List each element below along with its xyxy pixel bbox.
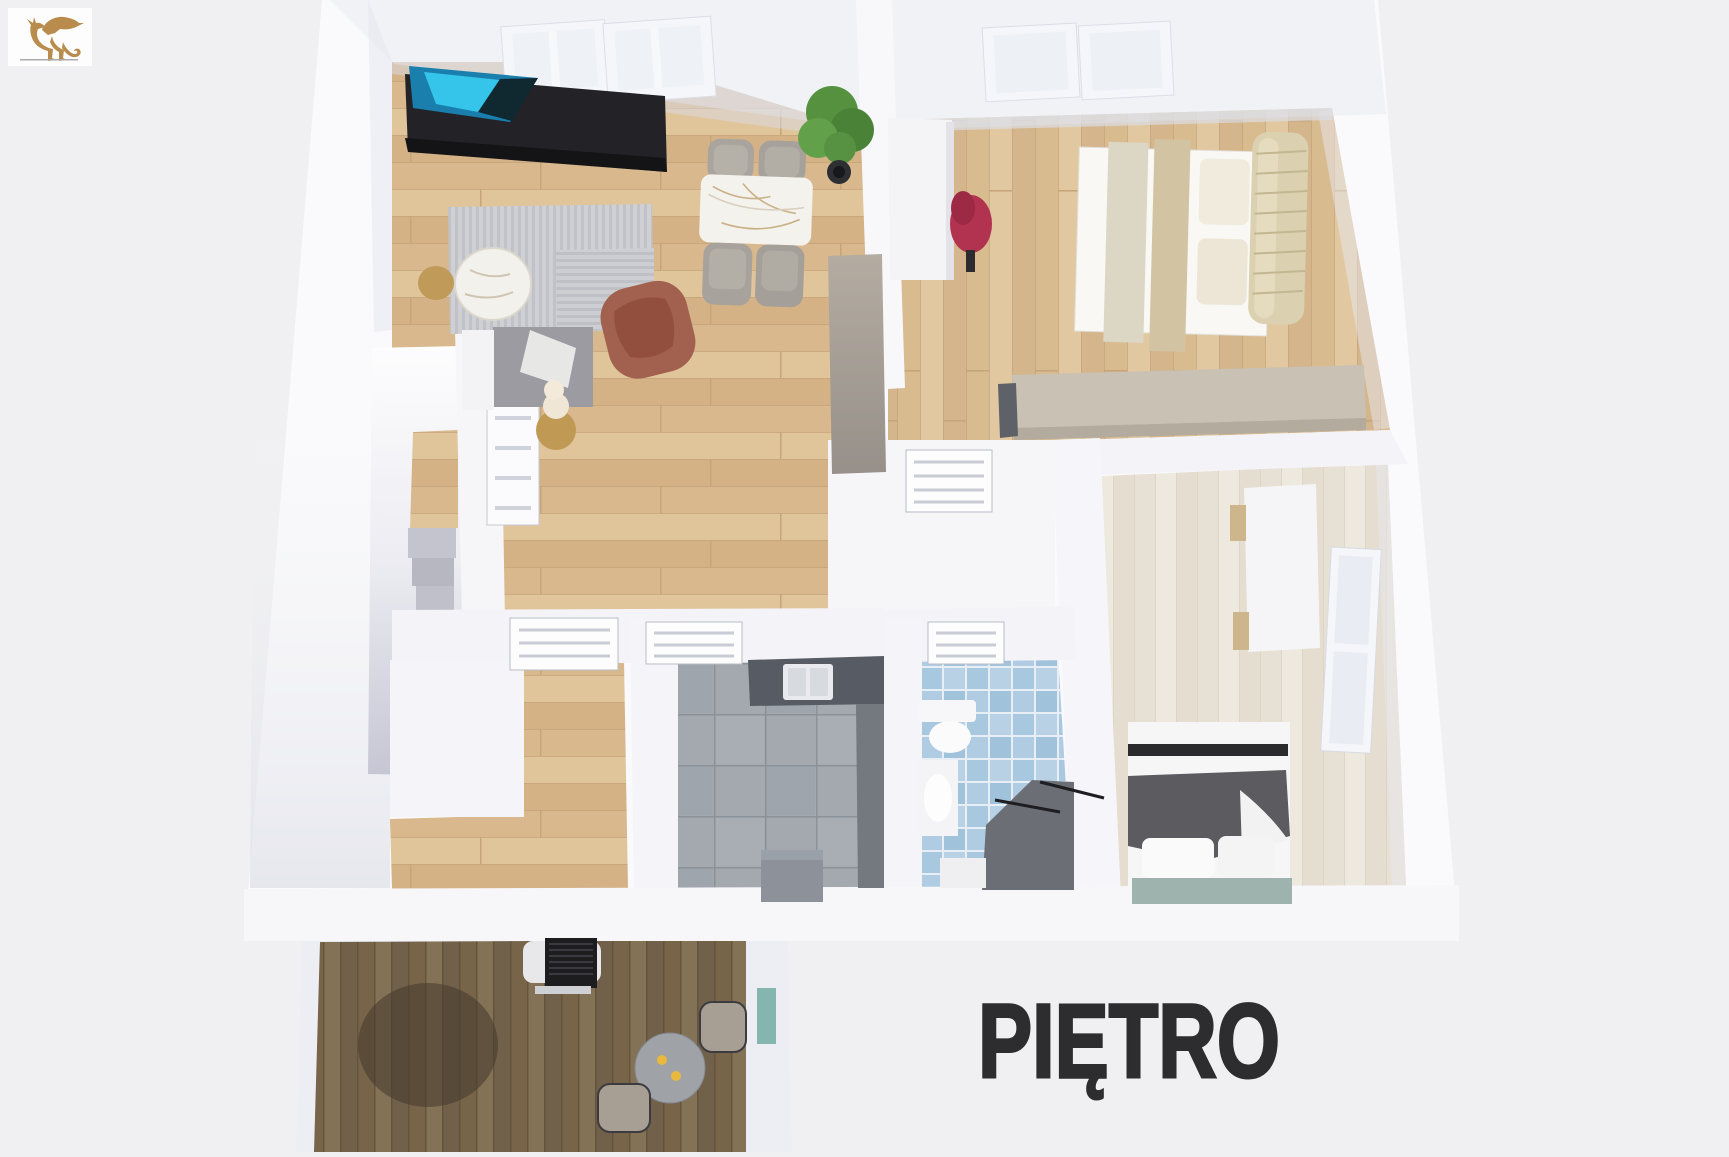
svg-text:PIĘTRO: PIĘTRO (978, 983, 1280, 1100)
